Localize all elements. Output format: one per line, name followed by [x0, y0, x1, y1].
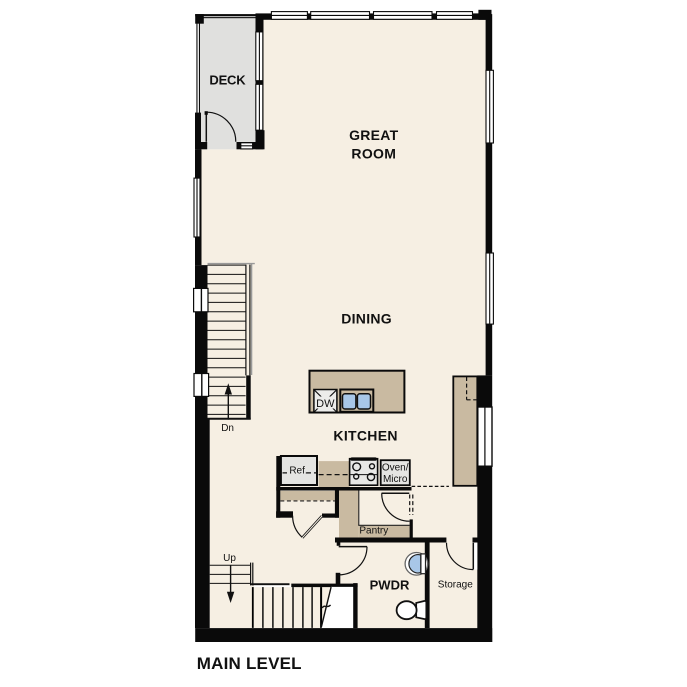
svg-text:Storage: Storage — [438, 579, 473, 590]
svg-text:DECK: DECK — [209, 73, 246, 88]
svg-text:PWDR: PWDR — [370, 578, 410, 593]
svg-text:DINING: DINING — [341, 310, 392, 326]
svg-text:Dn: Dn — [221, 423, 234, 434]
svg-text:Up: Up — [223, 553, 236, 564]
svg-text:Pantry: Pantry — [359, 526, 388, 537]
svg-text:GREAT: GREAT — [349, 127, 399, 143]
svg-text:ROOM: ROOM — [351, 145, 396, 161]
svg-text:MAIN LEVEL: MAIN LEVEL — [197, 654, 302, 673]
svg-text:KITCHEN: KITCHEN — [333, 428, 397, 444]
svg-text:DW: DW — [316, 398, 335, 410]
svg-text:Micro: Micro — [383, 474, 408, 485]
svg-text:Ref.: Ref. — [289, 466, 307, 477]
svg-text:Oven/: Oven/ — [382, 462, 409, 473]
